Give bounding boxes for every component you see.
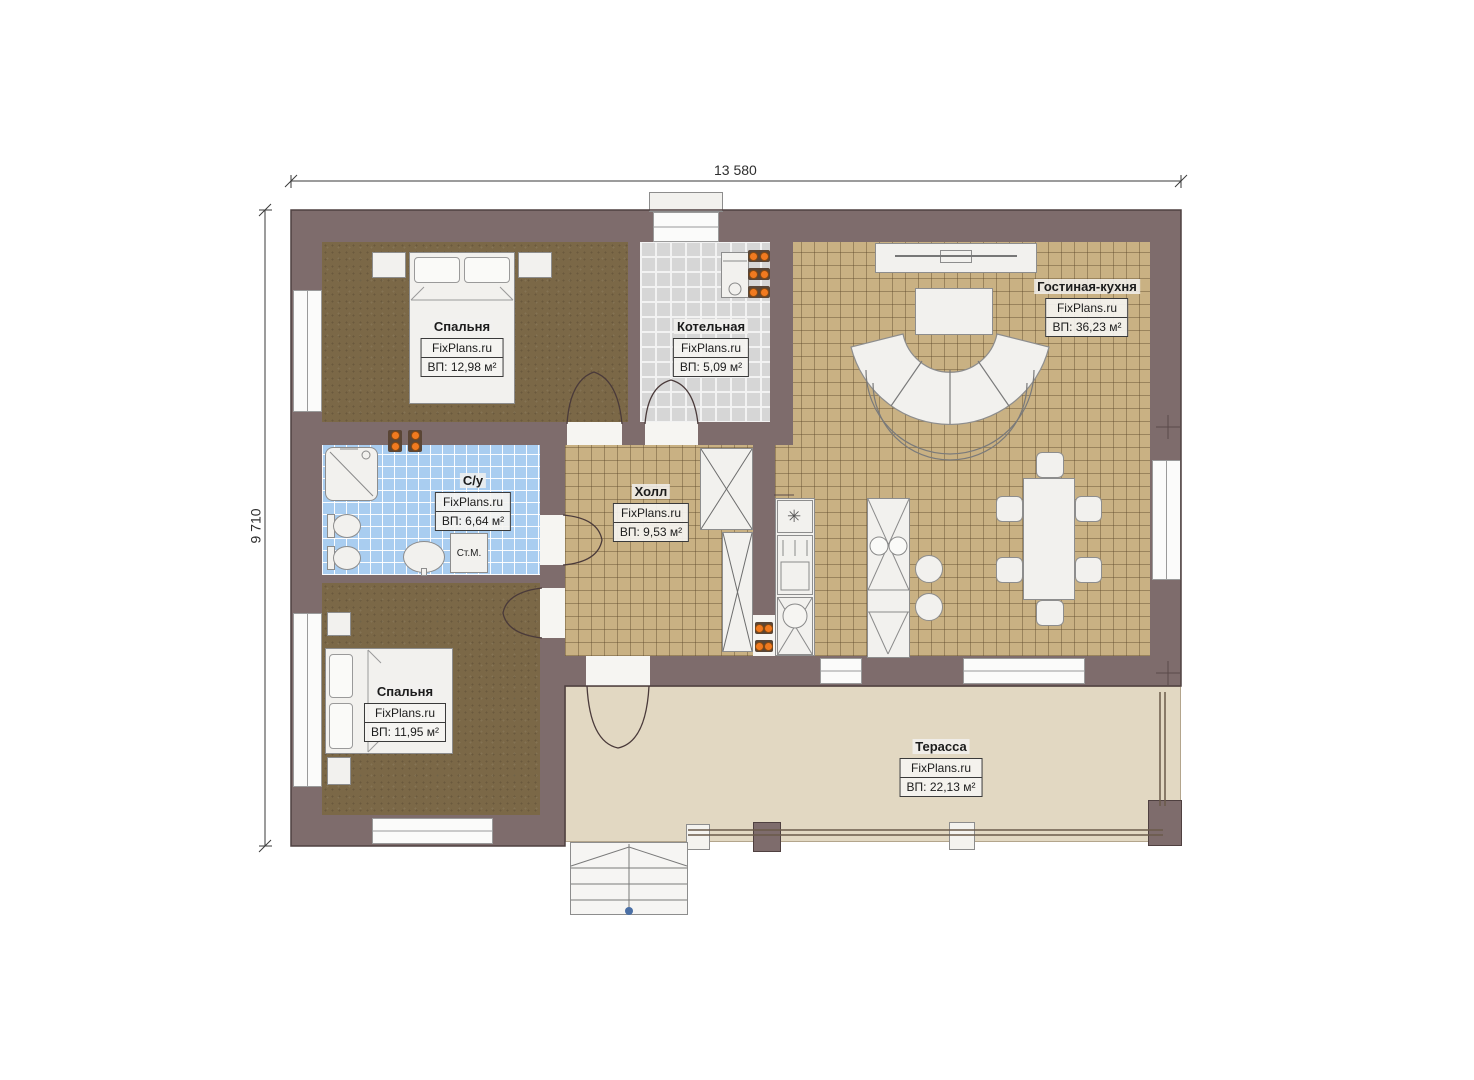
tv-screen: [940, 250, 972, 263]
room-name: Холл: [632, 484, 671, 499]
brand-watermark: FixPlans.ru: [901, 759, 982, 777]
wall-hall-kitchen: [753, 445, 775, 615]
room-area: ВП: 36,23 м²: [1047, 317, 1128, 336]
boiler-unit: [721, 252, 749, 298]
brand-watermark: FixPlans.ru: [365, 704, 445, 722]
window-living-right: [1152, 460, 1181, 580]
washbasin-tap: [421, 568, 427, 576]
dining-table: [1023, 478, 1075, 600]
nightstand: [372, 252, 406, 278]
nightstand: [327, 612, 351, 636]
terrace-corner-pillar: [1148, 800, 1182, 846]
entrance-stairs: [570, 842, 688, 915]
radiator: [748, 268, 770, 280]
pillow: [464, 257, 510, 283]
bar-stool: [915, 593, 943, 621]
dining-chair: [1075, 496, 1102, 522]
radiator: [755, 640, 773, 652]
room-label-bedroom1: Спальня FixPlans.ru ВП: 12,98 м²: [421, 318, 504, 377]
window-living-bottom-small: [820, 658, 862, 684]
terrace-pillar: [753, 822, 781, 852]
room-info-box: FixPlans.ru ВП: 6,64 м²: [435, 492, 511, 531]
dining-chair: [996, 496, 1023, 522]
room-info-box: FixPlans.ru ВП: 11,95 м²: [364, 703, 446, 742]
door-opening-terrace: [586, 656, 650, 686]
dimension-width-label: 13 580: [714, 162, 757, 178]
room-area: ВП: 9,53 м²: [614, 522, 688, 541]
washing-machine-label: Ст.М.: [457, 548, 482, 559]
door-opening-boiler: [645, 422, 698, 445]
room-name: Котельная: [674, 319, 748, 334]
nightstand: [327, 757, 351, 785]
room-info-box: FixPlans.ru ВП: 22,13 м²: [900, 758, 983, 797]
room-area: ВП: 5,09 м²: [674, 357, 748, 376]
nightstand: [518, 252, 552, 278]
terrace-post: [686, 824, 710, 850]
terrace-floor: [565, 686, 1181, 842]
kitchen-sink-cabinet: [777, 597, 813, 655]
washing-machine: Ст.М.: [450, 533, 488, 573]
room-label-boiler: Котельная FixPlans.ru ВП: 5,09 м²: [673, 318, 749, 377]
wardrobe-tall: [700, 448, 753, 530]
room-name: Спальня: [431, 319, 493, 334]
kitchen-island: [867, 498, 910, 658]
pillow: [329, 654, 353, 698]
door-opening-bathroom: [540, 515, 565, 565]
floor-plan-canvas: Ст.М. ✳ Спальня FixPlans.ru ВП: 1: [0, 0, 1474, 1080]
wall-boiler-living: [770, 210, 793, 445]
pillow: [414, 257, 460, 283]
window-bedroom1-left: [293, 290, 322, 412]
wardrobe-tall: [722, 532, 753, 652]
radiator: [748, 286, 770, 298]
room-label-bathroom: С/у FixPlans.ru ВП: 6,64 м²: [435, 472, 511, 531]
dining-chair: [1075, 557, 1102, 583]
dining-chair: [996, 557, 1023, 583]
radiator: [408, 430, 422, 452]
room-label-bedroom2: Спальня FixPlans.ru ВП: 11,95 м²: [364, 683, 446, 742]
shower-tray: [325, 447, 378, 501]
dimension-height-label: 9 710: [248, 508, 264, 543]
terrace-post: [949, 822, 975, 850]
brand-watermark: FixPlans.ru: [1047, 299, 1128, 317]
brand-watermark: FixPlans.ru: [614, 504, 688, 522]
window-bedroom2-bottom: [372, 818, 493, 844]
room-name: Спальня: [374, 684, 436, 699]
pillow: [329, 703, 353, 749]
cooktop-burner-icon: ✳: [787, 508, 801, 525]
door-opening-bedroom1: [567, 422, 622, 445]
brand-watermark: FixPlans.ru: [674, 339, 748, 357]
radiator: [388, 430, 402, 452]
room-info-box: FixPlans.ru ВП: 12,98 м²: [421, 338, 504, 377]
room-label-hall: Холл FixPlans.ru ВП: 9,53 м²: [613, 483, 689, 542]
dining-chair: [1036, 452, 1064, 478]
oven: [777, 535, 813, 595]
room-area: ВП: 6,64 м²: [436, 511, 510, 530]
bidet-bowl: [333, 546, 361, 570]
brand-watermark: FixPlans.ru: [422, 339, 503, 357]
room-name: Терасса: [912, 739, 970, 754]
room-info-box: FixPlans.ru ВП: 9,53 м²: [613, 503, 689, 542]
coffee-table: [915, 288, 993, 335]
radiator: [755, 622, 773, 634]
room-info-box: FixPlans.ru ВП: 36,23 м²: [1046, 298, 1129, 337]
dining-chair: [1036, 600, 1064, 626]
room-name: Гостиная-кухня: [1034, 279, 1140, 294]
door-opening-bedroom2: [540, 588, 565, 638]
bar-stool: [915, 555, 943, 583]
room-area: ВП: 12,98 м²: [422, 357, 503, 376]
room-label-living-kitchen: Гостиная-кухня FixPlans.ru ВП: 36,23 м²: [1034, 278, 1140, 337]
entrance-landing: [649, 192, 723, 212]
window-living-bottom-wide: [963, 658, 1085, 684]
wall-bathroom-bedroom2: [322, 575, 540, 583]
room-name: С/у: [460, 473, 486, 488]
window-boiler-top: [653, 212, 719, 242]
wall-bedroom1-boiler: [628, 210, 640, 422]
room-area: ВП: 22,13 м²: [901, 777, 982, 796]
brand-watermark: FixPlans.ru: [436, 493, 510, 511]
room-label-terrace: Терасса FixPlans.ru ВП: 22,13 м²: [900, 738, 983, 797]
radiator: [748, 250, 770, 262]
toilet-bowl: [333, 514, 361, 538]
room-area: ВП: 11,95 м²: [365, 722, 445, 741]
room-info-box: FixPlans.ru ВП: 5,09 м²: [673, 338, 749, 377]
window-bedroom2-left: [293, 613, 322, 787]
